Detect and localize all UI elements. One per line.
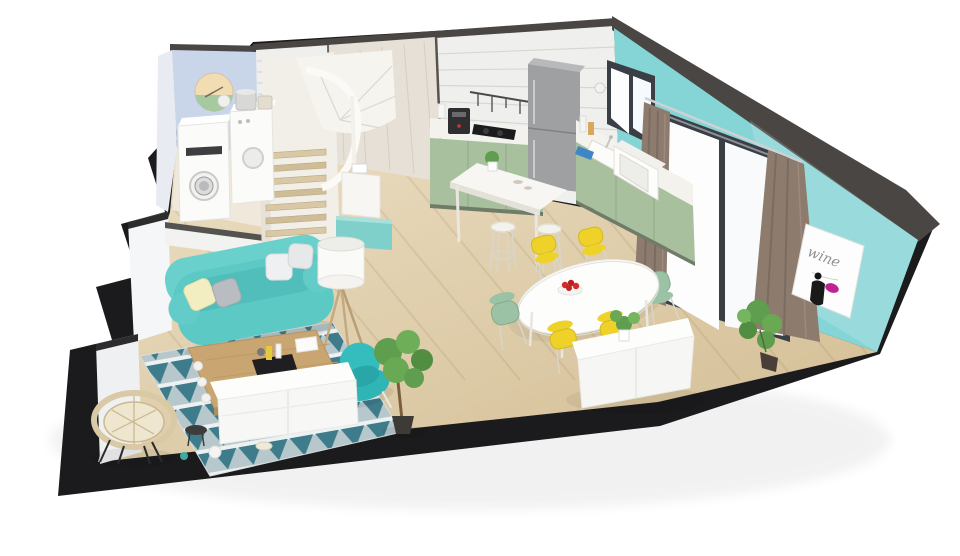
washing-machine[interactable] bbox=[178, 114, 232, 222]
poster-figure bbox=[815, 273, 822, 280]
wall-sconce bbox=[595, 83, 605, 93]
dryer[interactable] bbox=[230, 100, 276, 204]
coffee-machine[interactable] bbox=[448, 108, 470, 134]
scene-canvas: wine bbox=[0, 0, 960, 556]
floorplan-render: wine bbox=[0, 0, 960, 556]
